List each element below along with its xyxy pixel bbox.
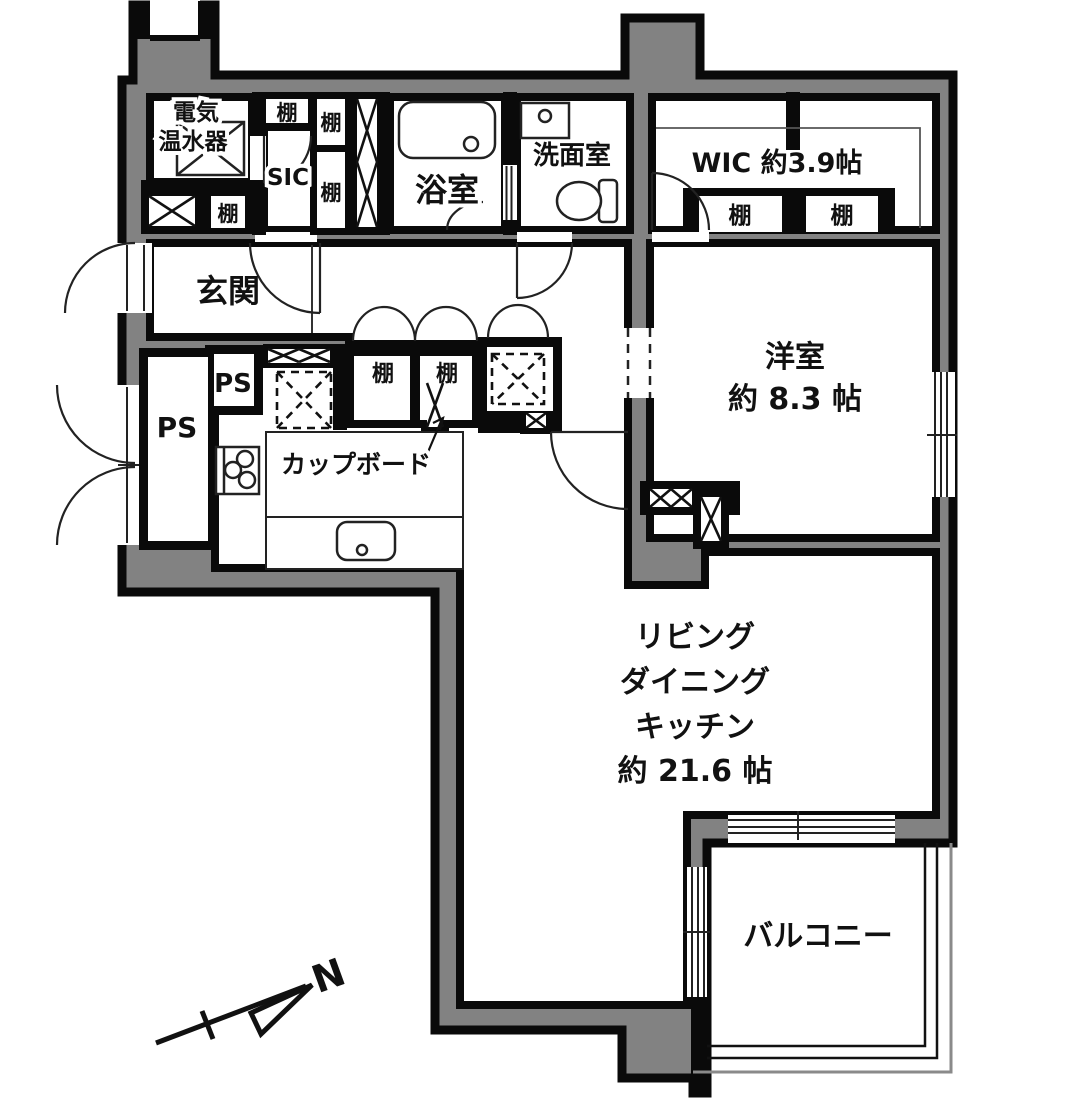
north-label: N [306,950,351,1002]
label-ldk-2: ダイニング [620,665,770,700]
label-heater-2: 温水器 [159,129,229,155]
washroom-door-gap [517,232,572,242]
floorplan-svg: N 玄関 浴室 洗面室 WIC 約3.9帖 洋室 約 8.3 帖 リビング ダイ… [0,0,1080,1100]
label-heater-1: 電気 [173,99,219,126]
floorplan-page: N 玄関 浴室 洗面室 WIC 約3.9帖 洋室 約 8.3 帖 リビング ダイ… [0,0,1080,1100]
toilet [557,180,617,222]
balcony-top-window [728,811,895,843]
label-western-room-1: 洋室 [765,340,825,375]
north-arrow-icon: N [156,950,351,1043]
label-cupboard: カップボード [281,450,431,479]
label-sic: SIC [267,165,309,191]
label-wic: WIC 約3.9帖 [692,147,863,179]
label-shelf-2: 棚 [321,111,342,135]
label-shelf-3: 棚 [321,181,342,205]
label-ldk-1: リビング [635,620,755,655]
entrance-door [117,243,152,313]
label-ldk-3: キッチン [635,710,755,745]
label-shelf-8: 棚 [831,203,854,229]
label-shelf-5: 棚 [372,362,394,387]
label-shelf-1: 棚 [277,101,298,125]
label-washroom: 洗面室 [533,140,611,171]
label-balcony: バルコニー [743,919,892,954]
western-room-window [927,372,957,497]
label-shelf-4: 棚 [218,202,239,226]
wash-basin [521,103,569,138]
balcony-left-window [683,867,710,997]
label-entrance: 玄関 [196,272,260,310]
stove [216,447,259,494]
wic-door-gap [652,232,709,242]
kitchen-sink [337,522,395,560]
label-shelf-6: 棚 [436,362,458,387]
label-bath: 浴室 [415,171,479,209]
label-shelf-7: 棚 [729,203,752,229]
label-western-room-2: 約 8.3 帖 [728,382,862,417]
label-ldk-4: 約 21.6 帖 [618,754,773,789]
bathtub [399,102,495,158]
bath-sliding-door [503,165,517,223]
western-room-opening [624,328,654,398]
label-ps-2: PS [214,369,252,399]
label-ps-1: PS [157,411,198,444]
balcony-railing [693,843,951,1072]
